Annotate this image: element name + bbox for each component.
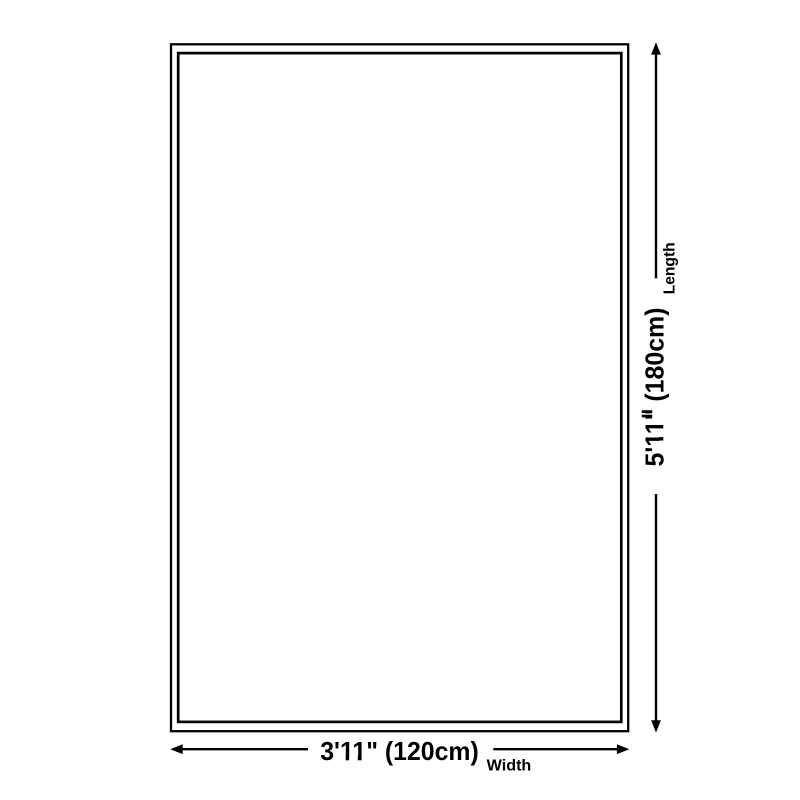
svg-text:3'11" (120cm): 3'11" (120cm): [320, 736, 479, 766]
svg-text:5'11" (180cm): 5'11" (180cm): [639, 308, 669, 467]
svg-text:Length: Length: [662, 242, 679, 294]
svg-text:Width: Width: [487, 757, 532, 774]
